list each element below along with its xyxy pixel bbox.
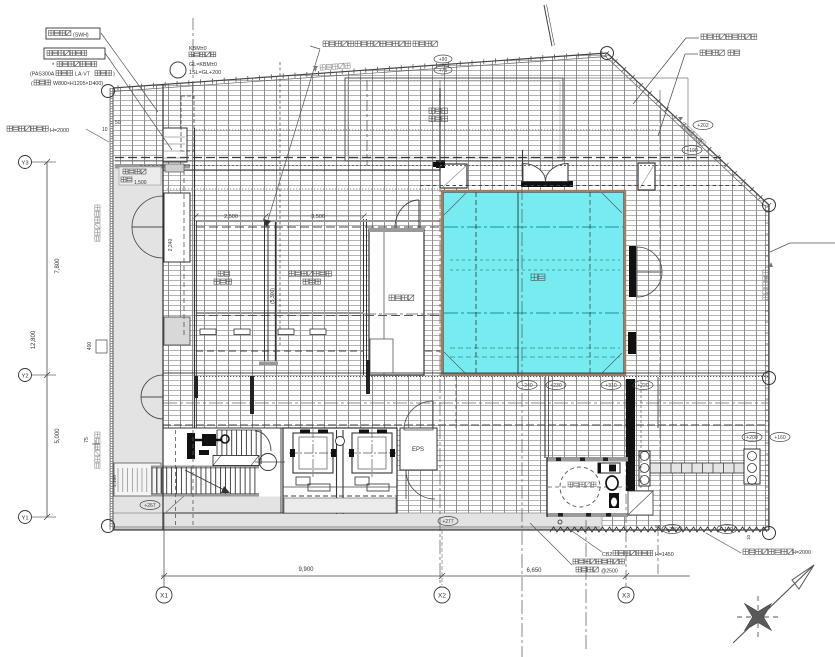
- svg-text:50: 50: [115, 120, 121, 126]
- svg-text:X1: X1: [160, 593, 168, 600]
- svg-text:2,240: 2,240: [168, 239, 174, 252]
- svg-text:9,900: 9,900: [298, 567, 314, 573]
- svg-text:Y2: Y2: [21, 373, 28, 379]
- svg-text:H=2000: H=2000: [50, 128, 69, 134]
- svg-text:3,500: 3,500: [311, 214, 325, 220]
- svg-text:KBM±0: KBM±0: [189, 46, 207, 52]
- svg-text:+230: +230: [550, 383, 561, 389]
- svg-text:+277: +277: [442, 519, 453, 525]
- svg-text:+75: +75: [439, 68, 448, 74]
- svg-text:(5,300): (5,300): [270, 288, 276, 304]
- svg-text:(: (: [31, 81, 33, 87]
- svg-text:@2500: @2500: [601, 569, 618, 575]
- svg-text:+160: +160: [721, 527, 732, 533]
- svg-text:Y1: Y1: [21, 515, 28, 521]
- svg-text:+202: +202: [697, 123, 708, 129]
- svg-text:+90: +90: [439, 57, 448, 63]
- svg-text:+310: +310: [605, 383, 616, 389]
- svg-text:2,500: 2,500: [224, 214, 238, 220]
- svg-text:(PAS300A: (PAS300A: [30, 72, 55, 78]
- svg-text:X3: X3: [622, 593, 630, 600]
- svg-text:W800×H1205×D400): W800×H1205×D400): [53, 81, 103, 87]
- svg-text:H=1450: H=1450: [655, 552, 674, 558]
- svg-text:+267: +267: [144, 503, 155, 509]
- svg-text:Y3: Y3: [21, 160, 28, 166]
- svg-text:12,800: 12,800: [31, 330, 37, 349]
- svg-text:400: 400: [87, 342, 93, 351]
- svg-text:EPS: EPS: [412, 447, 424, 453]
- svg-text:10: 10: [102, 127, 108, 133]
- svg-text:6,650: 6,650: [526, 568, 542, 574]
- svg-text:(SWH): (SWH): [73, 33, 89, 39]
- svg-text:+190: +190: [686, 148, 697, 154]
- svg-text:75: 75: [84, 437, 90, 443]
- svg-text:CB2: CB2: [602, 552, 612, 558]
- svg-text:X2: X2: [438, 593, 446, 600]
- svg-text:): ): [113, 72, 115, 78]
- svg-text:50: 50: [655, 524, 661, 529]
- svg-text:5,000: 5,000: [55, 428, 61, 444]
- svg-text:+240: +240: [521, 383, 532, 389]
- svg-text:7,800: 7,800: [55, 258, 61, 274]
- svg-text:1,500: 1,500: [134, 180, 147, 186]
- svg-text:+160: +160: [774, 435, 785, 441]
- svg-text:LA·VT: LA·VT: [75, 72, 91, 78]
- svg-text:+220: +220: [637, 383, 648, 389]
- svg-text:1,100: 1,100: [112, 475, 118, 487]
- svg-text:+200: +200: [666, 527, 677, 533]
- svg-text:10: 10: [746, 534, 751, 540]
- svg-text:H=2000: H=2000: [792, 550, 811, 556]
- svg-text:+200: +200: [746, 435, 757, 441]
- svg-text:GL=KBM±0: GL=KBM±0: [189, 62, 217, 68]
- svg-text:1SL=GL+200: 1SL=GL+200: [189, 70, 221, 76]
